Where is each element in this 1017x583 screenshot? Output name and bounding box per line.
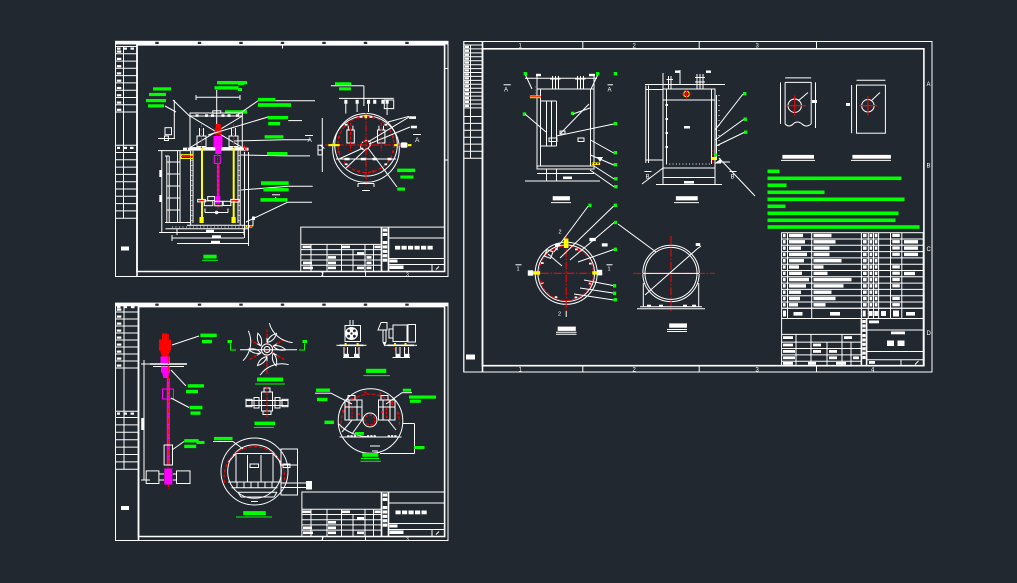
svg-text:2: 2 (321, 537, 324, 543)
svg-text:A: A (504, 88, 508, 94)
svg-text:A: A (608, 88, 612, 94)
svg-text:A: A (308, 137, 313, 144)
svg-text:1: 1 (517, 267, 520, 273)
svg-text:A: A (415, 137, 420, 144)
svg-text:B: B (646, 175, 650, 181)
svg-text:3: 3 (406, 273, 409, 279)
svg-text:2: 2 (559, 230, 562, 236)
svg-text:B: B (927, 164, 931, 170)
svg-text:2: 2 (558, 312, 561, 318)
svg-text:B: B (731, 175, 735, 181)
svg-text:1: 1 (608, 267, 611, 273)
svg-text:3: 3 (406, 537, 409, 543)
svg-text:C: C (927, 247, 932, 253)
svg-text:2: 2 (321, 272, 324, 278)
svg-text:A: A (927, 82, 931, 88)
svg-text:D: D (927, 331, 932, 337)
